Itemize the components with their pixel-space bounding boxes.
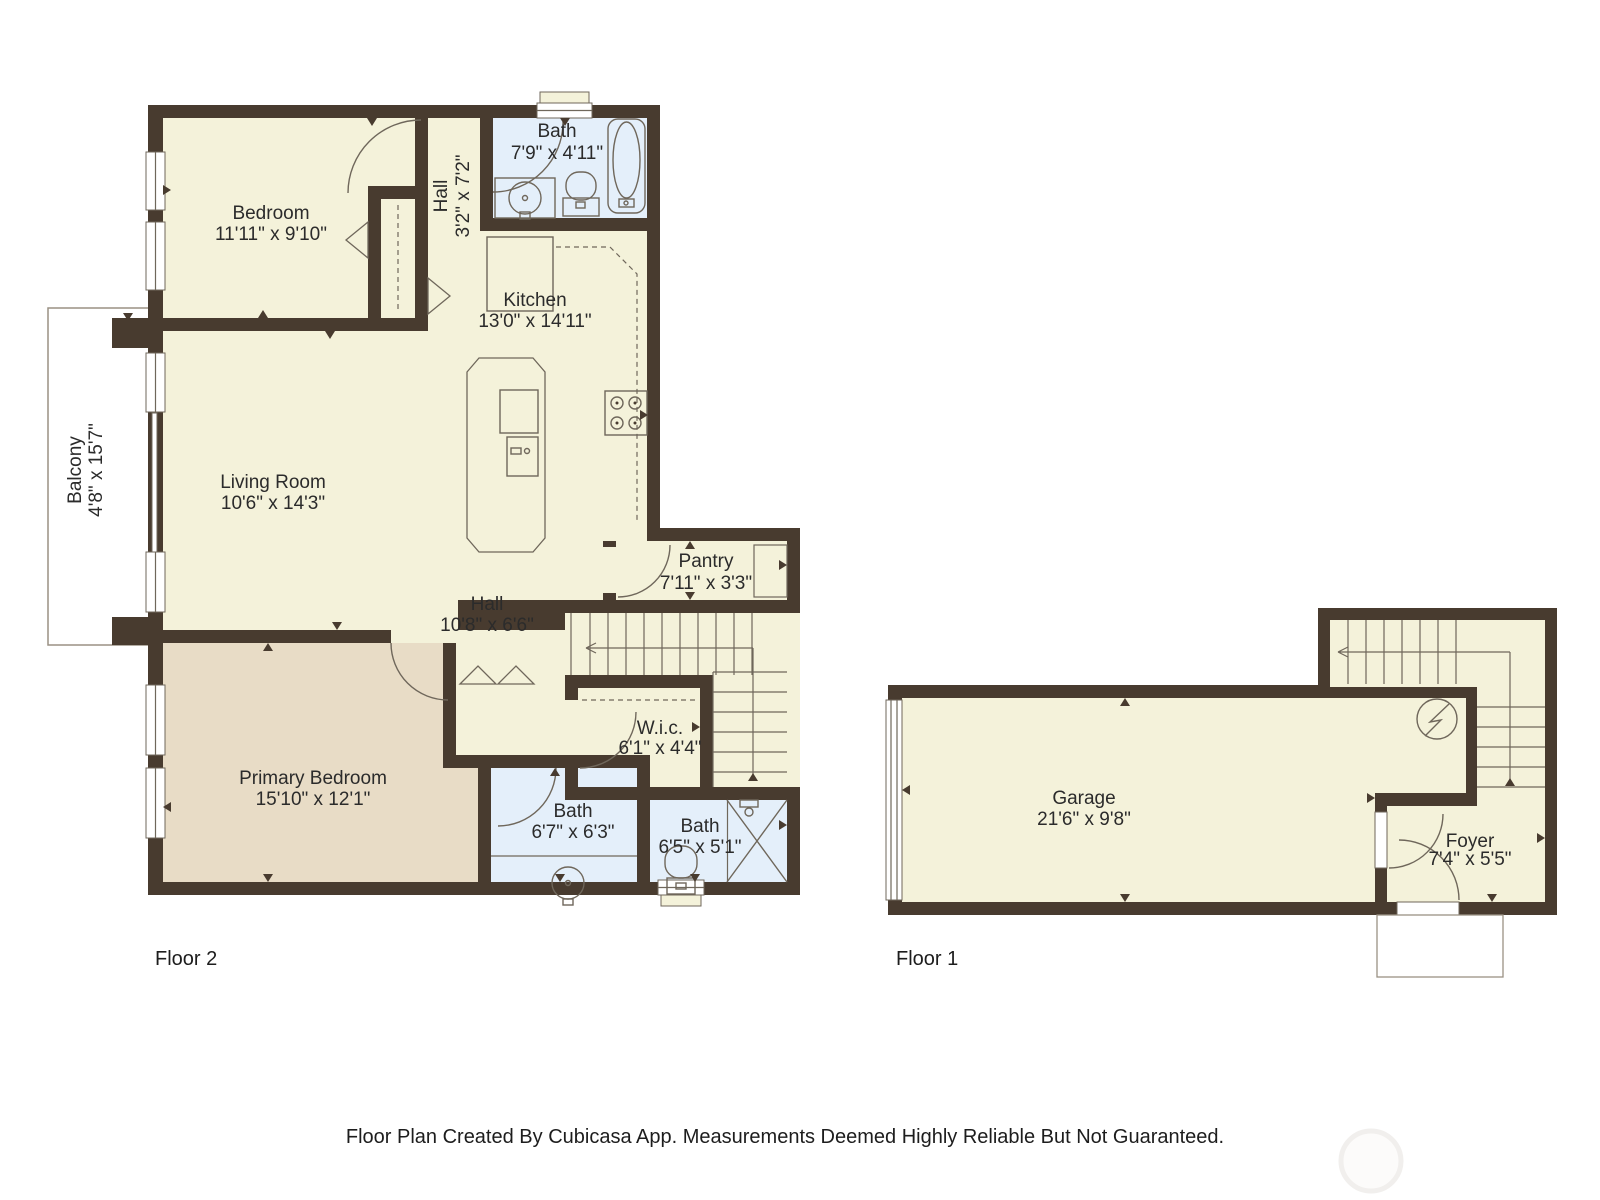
room-label-bath-small: Bath xyxy=(680,816,719,837)
room-label-primary: Primary Bedroom xyxy=(239,768,387,789)
floor-plan-canvas: Bedroom 11'11" x 9'10" Bath 7'9" x 4'11"… xyxy=(0,0,1600,1200)
room-label-hall-lower: Hall xyxy=(471,594,504,615)
kitchen-island xyxy=(467,358,545,552)
room-dims-primary: 15'10" x 12'1" xyxy=(256,789,371,810)
room-dims-kitchen: 13'0" x 14'11" xyxy=(478,311,591,332)
room-label-balcony: Balcony xyxy=(65,436,86,504)
room-dims-pantry: 7'11" x 3'3" xyxy=(660,573,752,594)
floor-plan-page: Bedroom 11'11" x 9'10" Bath 7'9" x 4'11"… xyxy=(0,0,1600,1200)
room-label-bath-top: Bath xyxy=(537,121,576,142)
floor1-plan: Garage 21'6" x 9'8" Foyer 7'4" x 5'5" xyxy=(886,608,1557,977)
room-label-pantry: Pantry xyxy=(679,551,734,572)
footer-disclaimer: Floor Plan Created By Cubicasa App. Meas… xyxy=(346,1126,1224,1148)
watermark-circle xyxy=(1341,1131,1401,1191)
room-label-bath-mid: Bath xyxy=(553,801,592,822)
room-dims-hall-upper: 3'2" x 7'2" xyxy=(453,154,474,237)
room-dims-bath-mid: 6'7" x 6'3" xyxy=(531,822,614,843)
primary-bedroom-floor xyxy=(163,643,478,882)
floor2-plan: Bedroom 11'11" x 9'10" Bath 7'9" x 4'11"… xyxy=(48,92,800,906)
floor1-caption: Floor 1 xyxy=(896,948,958,970)
room-label-hall-upper: Hall xyxy=(431,180,452,213)
room-label-kitchen: Kitchen xyxy=(503,290,566,311)
garage-door xyxy=(886,700,902,900)
room-dims-bedroom: 11'11" x 9'10" xyxy=(215,224,327,245)
room-label-wic: W.i.c. xyxy=(637,718,683,739)
room-dims-foyer: 7'4" x 5'5" xyxy=(1428,849,1511,870)
room-dims-living: 10'6" x 14'3" xyxy=(221,493,325,514)
floor2-caption: Floor 2 xyxy=(155,948,217,970)
room-label-living: Living Room xyxy=(220,472,326,493)
sliding-door-glass xyxy=(152,413,157,552)
room-dims-bath-small: 6'5" x 5'1" xyxy=(658,837,741,858)
entry-porch xyxy=(1377,915,1503,977)
room-label-garage: Garage xyxy=(1052,788,1115,809)
room-dims-garage: 21'6" x 9'8" xyxy=(1037,809,1131,830)
room-dims-balcony: 4'8" x 15'7" xyxy=(86,423,107,517)
room-label-bedroom: Bedroom xyxy=(232,203,309,224)
room-dims-bath-top: 7'9" x 4'11" xyxy=(511,143,603,164)
room-dims-hall-lower: 10'8" x 6'6" xyxy=(440,615,534,636)
room-dims-wic: 6'1" x 4'4" xyxy=(618,738,701,759)
